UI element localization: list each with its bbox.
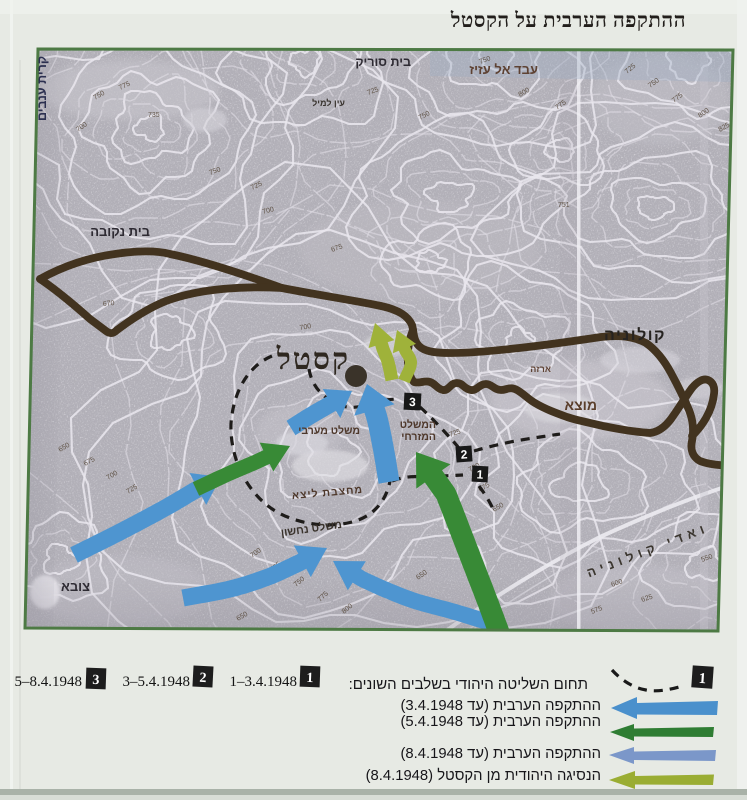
svg-text:751: 751 (558, 202, 570, 209)
svg-text:2: 2 (199, 671, 207, 686)
svg-text:בית נקובה: בית נקובה (90, 224, 150, 239)
svg-text:670: 670 (103, 300, 115, 308)
svg-text:1: 1 (698, 671, 707, 687)
svg-text:עבד אל עזיז: עבד אל עזיז (469, 62, 538, 77)
svg-text:קרית ענבים: קרית ענבים (35, 56, 49, 121)
svg-text:ארזה: ארזה (530, 364, 551, 374)
svg-text:ההתקפה הערבית (עד 5.4.1948): ההתקפה הערבית (עד 5.4.1948) (400, 714, 601, 730)
svg-text:5–8.4.1948: 5–8.4.1948 (15, 674, 83, 690)
svg-text:הנסיגה היהודית מן הקסטל (8.4.1: הנסיגה היהודית מן הקסטל (8.4.1948) (366, 767, 601, 784)
svg-text:בית סוריק: בית סוריק (355, 55, 411, 69)
svg-text:ההתקפה הערבית (עד 3.4.1948): ההתקפה הערבית (עד 3.4.1948) (400, 698, 601, 714)
svg-text:קסטל: קסטל (276, 343, 350, 376)
svg-text:משלט מערבי: משלט מערבי (298, 425, 360, 437)
svg-text:מוצא: מוצא (565, 397, 597, 413)
svg-text:1–3.4.1948: 1–3.4.1948 (230, 674, 298, 690)
svg-text:תחום השליטה היהודי בשלבים השונ: תחום השליטה היהודי בשלבים השונים: (349, 676, 588, 693)
svg-text:3: 3 (92, 673, 100, 688)
svg-text:המשלט: המשלט (400, 419, 436, 431)
svg-text:קולוניה: קולוניה (604, 326, 666, 344)
svg-text:1: 1 (476, 467, 484, 481)
svg-text:המזרחי: המזרחי (401, 431, 436, 443)
svg-text:צובא: צובא (61, 579, 90, 594)
svg-text:735: 735 (148, 112, 160, 119)
svg-text:ההתקפה הערבית על הקסטל: ההתקפה הערבית על הקסטל (450, 10, 686, 32)
svg-text:3: 3 (409, 395, 417, 409)
svg-text:ההתקפה הערבית (עד 8.4.1948): ההתקפה הערבית (עד 8.4.1948) (400, 746, 601, 762)
svg-text:2: 2 (460, 447, 468, 461)
svg-text:1: 1 (306, 671, 314, 686)
svg-text:עין למיל: עין למיל (312, 98, 345, 108)
svg-text:3–5.4.1948: 3–5.4.1948 (123, 674, 191, 690)
